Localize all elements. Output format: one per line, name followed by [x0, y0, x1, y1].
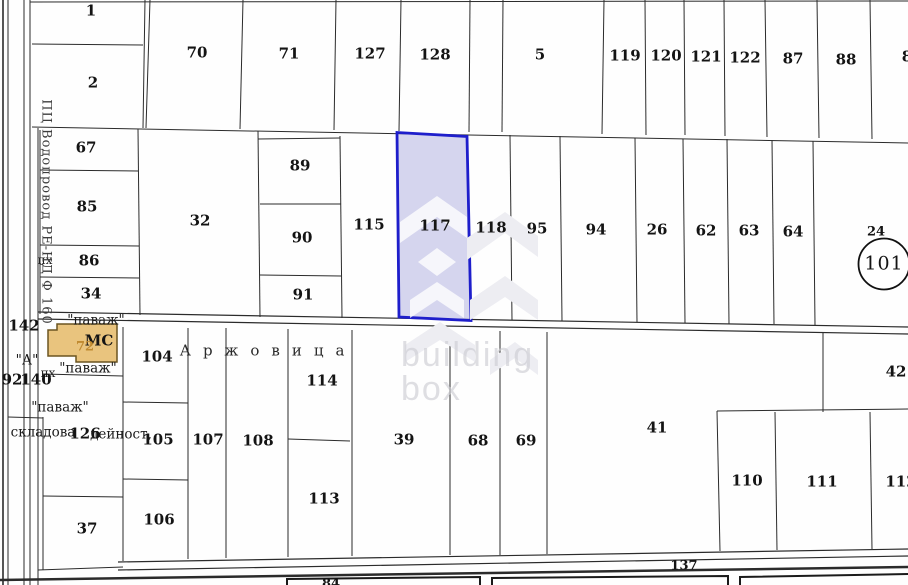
- parcel-95-label: 95: [527, 222, 548, 237]
- pavazh-top-label: "паваж": [67, 314, 125, 328]
- road-84-partial-label: 84: [322, 578, 340, 585]
- cadastral-map: building box 127071127128511912012112287…: [0, 0, 908, 585]
- building-72-label: 72: [76, 341, 94, 354]
- parcel-90-label: 90: [292, 231, 313, 246]
- parcel-121-label: 121: [690, 50, 721, 65]
- parcel-41-label: 41: [647, 421, 668, 436]
- parcel-142-label: 142: [8, 319, 39, 334]
- parcel-68-label: 68: [468, 434, 489, 449]
- parcel-122-label: 122: [729, 51, 760, 66]
- parcel-127-label: 127: [354, 47, 385, 62]
- parcel-120-label: 120: [650, 49, 681, 64]
- parcel-5-label: 5: [535, 48, 545, 63]
- parcel-69-label: 69: [516, 434, 537, 449]
- parcel-101-label: 101: [864, 255, 903, 274]
- parcel-70-label: 70: [187, 46, 208, 61]
- quoted-a-label: "А": [16, 354, 39, 368]
- parcel-118-label: 118: [475, 221, 506, 236]
- vodoprovod-label: ПЦ Водопровод РЕ-НД Ф 160: [40, 99, 53, 325]
- parcel-partial-right-label: 8: [902, 50, 908, 65]
- parcel-34-label: 34: [81, 287, 102, 302]
- parcel-111-label: 111: [806, 475, 837, 490]
- parcel-108-label: 108: [242, 434, 273, 449]
- parcel-2-label: 2: [88, 76, 98, 91]
- parcel-105-label: 105: [142, 433, 173, 448]
- parcel-37-label: 37: [77, 522, 98, 537]
- parcel-67-label: 67: [76, 141, 97, 156]
- parcel-87-label: 87: [783, 52, 804, 67]
- parcel-71-label: 71: [279, 47, 300, 62]
- parcel-24-label: 24: [867, 226, 885, 239]
- parcel-140-label: 140: [20, 373, 51, 388]
- parcel-113-label: 113: [308, 492, 339, 507]
- parcel-107-label: 107: [192, 433, 223, 448]
- pavazh-mid-label: "паваж": [59, 362, 117, 376]
- parcel-119-label: 119: [609, 49, 640, 64]
- parcel-92-label: 92: [2, 373, 23, 388]
- parcel-89-label: 89: [290, 159, 311, 174]
- parcel-64-label: 64: [783, 225, 804, 240]
- parcel-94-label: 94: [586, 223, 607, 238]
- parcel-117-label: 117: [419, 219, 450, 234]
- labels-layer: 1270711271285119120121122878886785пх8634…: [0, 0, 908, 585]
- parcel-106-label: 106: [143, 513, 174, 528]
- skladova-label: складова: [11, 426, 76, 440]
- parcel-85-label: 85: [77, 200, 98, 215]
- parcel-32-label: 32: [190, 214, 211, 229]
- parcel-115-label: 115: [353, 218, 384, 233]
- parcel-112-partial-label: 112: [885, 475, 908, 490]
- parcel-1-label: 1: [86, 4, 96, 19]
- street-arzhovitsa-label: Аржовица: [180, 344, 357, 359]
- parcel-26-label: 26: [647, 223, 668, 238]
- parcel-91-label: 91: [293, 288, 314, 303]
- parcel-42-label: 42: [886, 365, 907, 380]
- parcel-104-label: 104: [141, 350, 172, 365]
- parcel-63-label: 63: [739, 224, 760, 239]
- pavazh-low-label: "паваж": [31, 401, 89, 415]
- parcel-128-label: 128: [419, 48, 450, 63]
- parcel-39-label: 39: [394, 433, 415, 448]
- parcel-62-label: 62: [696, 224, 717, 239]
- parcel-114-label: 114: [306, 374, 337, 389]
- parcel-86-label: 86: [79, 254, 100, 269]
- road-137-label: 137: [670, 560, 697, 573]
- parcel-110-label: 110: [731, 474, 762, 489]
- parcel-88-label: 88: [836, 53, 857, 68]
